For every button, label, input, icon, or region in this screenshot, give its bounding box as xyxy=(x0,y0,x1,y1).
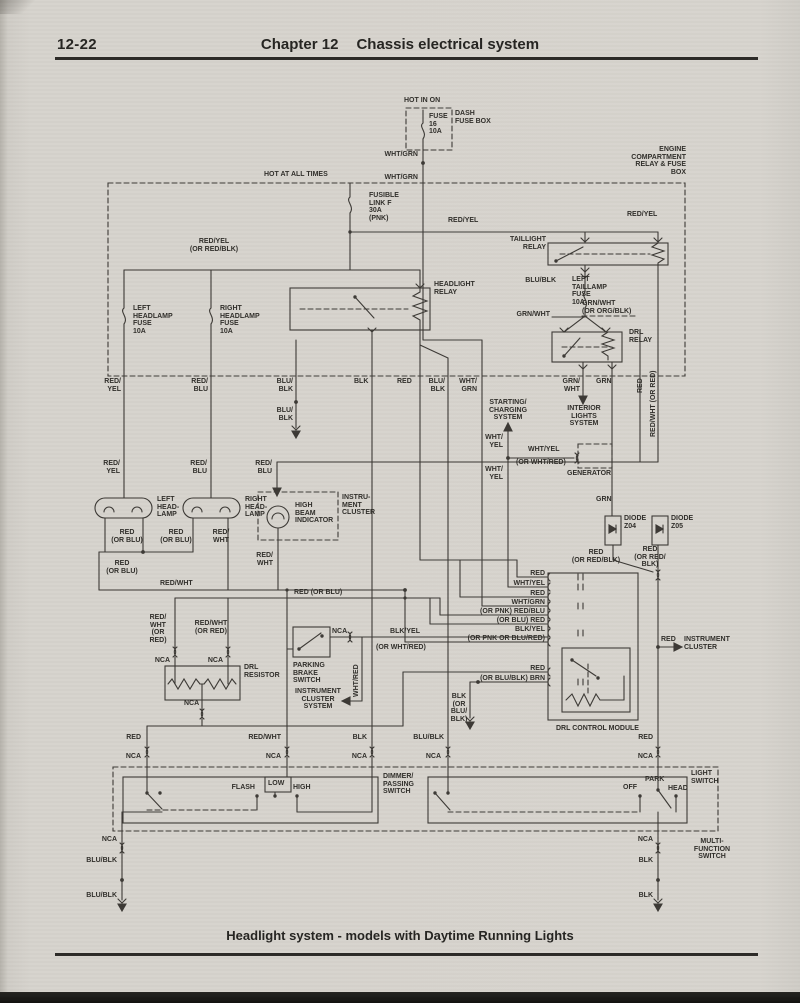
label-col-blu-blk2: BLU/ BLK xyxy=(429,378,445,393)
label-red-ob-h: RED (OR BLU) xyxy=(294,589,342,597)
label-lamp-red-yel: RED/ YEL xyxy=(103,460,120,475)
label-instrument-cluster-1: INSTRU- MENT CLUSTER xyxy=(342,494,375,517)
label-multi-function: MULTI- FUNCTION SWITCH xyxy=(694,838,730,861)
label-instrument-cluster-2: INSTRUMENT CLUSTER xyxy=(684,636,730,651)
label-light-switch: LIGHT SWITCH xyxy=(691,770,719,785)
label-blu-blk-g1: BLU/BLK xyxy=(86,857,117,865)
label-nca-b5: NCA xyxy=(638,753,653,761)
label-low: LOW xyxy=(268,780,284,788)
label-diode-z05: DIODE Z05 xyxy=(671,515,693,530)
label-blk-yel-pb-alt: (OR WHT/RED) xyxy=(376,644,426,652)
label-blu-blk-gnd: BLU/ BLK xyxy=(277,407,293,422)
label-red-wht-h: RED/WHT xyxy=(160,580,193,588)
label-hot-at-all-times: HOT AT ALL TIMES xyxy=(264,171,328,179)
label-hot-in-on: HOT IN ON xyxy=(404,97,440,105)
label-fusible-link: FUSIBLE LINK F 30A (PNK) xyxy=(369,192,399,222)
label-off: OFF xyxy=(623,784,637,792)
label-grn-mid: GRN xyxy=(596,496,612,504)
label-drl-module: DRL CONTROL MODULE xyxy=(556,725,639,733)
label-nca-b1: NCA xyxy=(126,753,141,761)
label-blk-g2: BLK xyxy=(639,892,653,900)
label-red-yel-feed: RED/YEL xyxy=(448,217,478,225)
label-red-ob-1: RED (OR BLU) xyxy=(111,529,143,544)
label-flash: FLASH xyxy=(232,784,255,792)
label-red-wht-dim: RED/WHT xyxy=(248,734,281,742)
label-blk-gnd-stack: BLK (OR BLU/ BLK) xyxy=(451,693,468,723)
generator-box-outline xyxy=(578,444,612,468)
scan-bottom-band xyxy=(0,992,800,1003)
label-headlight-relay: HEADLIGHT RELAY xyxy=(434,281,475,296)
label-col-red-wht-vert: RED/WHT (OR RED) xyxy=(650,371,658,438)
label-mi-5: (OR PNK) RED/BLU xyxy=(480,608,545,616)
module-connector-details xyxy=(548,573,583,686)
label-left-headlamp: LEFT HEAD- LAMP xyxy=(157,496,179,519)
label-mi-3: RED xyxy=(530,590,545,598)
label-red-lsw: RED xyxy=(638,734,653,742)
label-wht-yel-gen: WHT/YEL xyxy=(528,446,560,454)
label-drl-relay: DRL RELAY xyxy=(629,329,652,344)
label-grn-wht-left: GRN/WHT xyxy=(517,311,550,319)
label-red-ic: RED xyxy=(661,636,676,644)
label-head: HEAD xyxy=(668,785,688,793)
label-col-red-blu: RED/ BLU xyxy=(191,378,208,393)
label-mi-8: (OR PNK OR BLU/RED) xyxy=(468,635,545,643)
label-red-ob-2: RED (OR BLU) xyxy=(160,529,192,544)
label-drl-resistor: DRL RESISTOR xyxy=(244,664,280,679)
label-col-grn-wht: GRN/ WHT xyxy=(563,378,581,393)
label-wht-yel-gen-alt: (OR WHT/RED) xyxy=(516,459,566,467)
parking-brake-switch-box xyxy=(293,627,330,657)
label-nca-g1: NCA xyxy=(102,836,117,844)
label-nca-res-2: NCA xyxy=(208,657,223,665)
ground-symbols xyxy=(118,426,662,911)
label-red-rb-1: RED (OR RED/BLK) xyxy=(572,549,620,564)
label-mi-9: RED xyxy=(530,665,545,673)
label-red-yel-alt: RED/YEL (OR RED/BLK) xyxy=(190,238,238,253)
label-mi-10: (OR BLU/BLK) BRN xyxy=(480,675,545,683)
label-blk-dim: BLK xyxy=(353,734,367,742)
label-wht-grn-1: WHT/GRN xyxy=(385,151,418,159)
label-engine-box: ENGINE COMPARTMENT RELAY & FUSE BOX xyxy=(631,146,686,176)
label-dash-fuse-box: DASH FUSE BOX xyxy=(455,110,491,125)
label-blk-g1: BLK xyxy=(639,857,653,865)
label-col-red: RED xyxy=(397,378,412,386)
label-mi-1: RED xyxy=(530,570,545,578)
label-diode-z04: DIODE Z04 xyxy=(624,515,646,530)
label-res-feed-1: RED/ WHT (OR RED) xyxy=(149,614,166,644)
label-left-headlamp-fuse: LEFT HEADLAMP FUSE 10A xyxy=(133,305,173,335)
drl-module-inner-box xyxy=(562,648,630,712)
label-grn-wht-alt: GRN/WHT (OR ORG/BLK) xyxy=(582,300,631,315)
label-col-red-yel: RED/ YEL xyxy=(104,378,121,393)
manual-page: 12-22 Chapter 12Chassis electrical syste… xyxy=(0,0,800,1003)
label-ind-red-blu: RED/ BLU xyxy=(255,460,272,475)
label-res-feed-2: RED/WHT (OR RED) xyxy=(195,620,228,635)
label-nca-res-3: NCA xyxy=(184,700,199,708)
label-wht-yel-2: WHT/ YEL xyxy=(485,466,503,481)
label-mi-6: (OR BLU) RED xyxy=(497,617,545,625)
label-col-grn: GRN xyxy=(596,378,612,386)
label-red-wht-ind: RED/ WHT xyxy=(256,552,273,567)
label-red-rb-2: RED (OR RED/ BLK) xyxy=(634,546,666,569)
label-col-blu-blk: BLU/ BLK xyxy=(277,378,293,393)
label-mi-2: WHT/YEL xyxy=(514,580,546,588)
label-high-beam: HIGH BEAM INDICATOR xyxy=(295,502,333,525)
label-nca-g2: NCA xyxy=(638,836,653,844)
light-switch-box xyxy=(428,777,687,823)
label-nca-b3: NCA xyxy=(352,753,367,761)
high-beam-indicator-symbol xyxy=(267,506,289,528)
label-red-ob-3: RED (OR BLU) xyxy=(106,560,138,575)
label-col-wht-grn: WHT/ GRN xyxy=(459,378,477,393)
label-nca-pb: NCA xyxy=(332,628,347,636)
label-col-blk: BLK xyxy=(354,378,368,386)
label-ics-system: INSTRUMENT CLUSTER SYSTEM xyxy=(295,688,341,711)
label-high: HIGH xyxy=(293,784,311,792)
label-right-headlamp: RIGHT HEAD- LAMP xyxy=(245,496,267,519)
label-right-headlamp-fuse: RIGHT HEADLAMP FUSE 10A xyxy=(220,305,260,335)
label-red-dim: RED xyxy=(126,734,141,742)
label-nca-b4: NCA xyxy=(426,753,441,761)
label-blu-blk-lsw: BLU/BLK xyxy=(413,734,444,742)
footer-rule xyxy=(55,953,758,956)
label-generator: GENERATOR xyxy=(567,470,611,478)
label-mi-7: BLK/YEL xyxy=(515,626,545,634)
label-blu-blk-tail: BLU/BLK xyxy=(525,277,556,285)
label-wht-yel-1: WHT/ YEL xyxy=(485,434,503,449)
label-red-yel-right: RED/YEL xyxy=(627,211,657,219)
label-interior-lights: INTERIOR LIGHTS SYSTEM xyxy=(567,405,600,428)
label-nca-b2: NCA xyxy=(266,753,281,761)
label-parking-brake: PARKING BRAKE SWITCH xyxy=(293,662,325,685)
label-starting-charging: STARTING/ CHARGING SYSTEM xyxy=(489,399,527,422)
label-taillight-relay: TAILLIGHT RELAY xyxy=(510,236,546,251)
label-blu-blk-g2: BLU/BLK xyxy=(86,892,117,900)
label-wht-red-vert: WHT/RED xyxy=(353,664,361,697)
label-park: PARK xyxy=(645,776,664,784)
label-col-red-vert: RED xyxy=(637,378,645,393)
label-red-wht-p: RED/ WHT xyxy=(213,529,230,544)
flow-arrows xyxy=(273,396,682,705)
label-nca-res-1: NCA xyxy=(155,657,170,665)
label-wht-grn-2: WHT/GRN xyxy=(385,174,418,182)
left-headlamp-symbol xyxy=(95,498,152,518)
label-dimmer-switch: DIMMER/ PASSING SWITCH xyxy=(383,773,414,796)
right-headlamp-symbol xyxy=(183,498,240,518)
label-blk-yel-pb: BLK/YEL xyxy=(390,628,420,636)
label-lamp-red-blu: RED/ BLU xyxy=(190,460,207,475)
label-dash-fuse: FUSE 16 10A xyxy=(429,113,448,136)
label-mi-4: WHT/GRN xyxy=(512,599,545,607)
diagram-caption: Headlight system - models with Daytime R… xyxy=(0,928,800,943)
